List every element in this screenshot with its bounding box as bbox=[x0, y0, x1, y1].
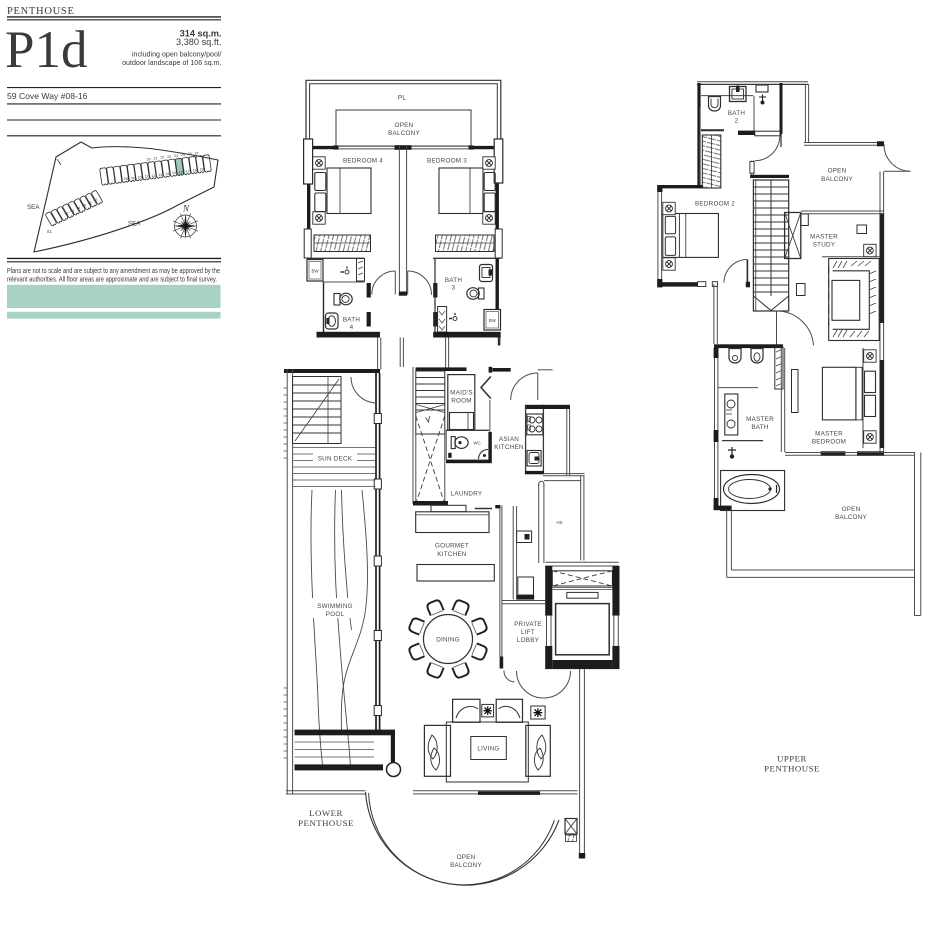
svg-text:17: 17 bbox=[186, 169, 190, 173]
svg-text:SEA: SEA bbox=[128, 221, 141, 228]
svg-text:MAID'S: MAID'S bbox=[450, 390, 473, 397]
svg-text:11: 11 bbox=[145, 175, 149, 179]
svg-text:10: 10 bbox=[138, 176, 142, 180]
svg-text:BEDROOM 3: BEDROOM 3 bbox=[427, 158, 467, 165]
svg-text:18: 18 bbox=[193, 169, 197, 173]
svg-text:12: 12 bbox=[151, 174, 155, 178]
svg-text:15: 15 bbox=[172, 171, 176, 175]
svg-text:22: 22 bbox=[160, 156, 164, 160]
svg-text:BALCONY: BALCONY bbox=[388, 130, 420, 137]
svg-text:BW: BW bbox=[489, 318, 497, 323]
svg-text:25: 25 bbox=[181, 153, 185, 157]
svg-text:outdoor landscape of 106 sq.m.: outdoor landscape of 106 sq.m. bbox=[122, 59, 221, 67]
svg-text:ROOM: ROOM bbox=[451, 398, 472, 405]
svg-text:KITCHEN: KITCHEN bbox=[494, 444, 524, 451]
svg-text:BATH: BATH bbox=[343, 317, 361, 324]
svg-text:PENTHOUSE: PENTHOUSE bbox=[7, 6, 75, 17]
svg-text:26: 26 bbox=[188, 152, 192, 156]
svg-text:BEDROOM 4: BEDROOM 4 bbox=[343, 158, 383, 165]
svg-text:MASTER: MASTER bbox=[810, 234, 838, 241]
svg-text:01: 01 bbox=[47, 229, 52, 234]
svg-text:04: 04 bbox=[76, 206, 80, 210]
svg-text:21: 21 bbox=[154, 157, 158, 161]
svg-text:OPEN: OPEN bbox=[828, 168, 847, 175]
svg-text:59 Cove Way #08-16: 59 Cove Way #08-16 bbox=[7, 91, 88, 101]
svg-text:3,380 sq.ft.: 3,380 sq.ft. bbox=[176, 37, 221, 47]
svg-text:OPEN: OPEN bbox=[457, 854, 476, 861]
svg-text:3: 3 bbox=[452, 285, 456, 292]
svg-text:MASTER: MASTER bbox=[815, 431, 843, 438]
svg-text:KITCHEN: KITCHEN bbox=[437, 551, 467, 558]
svg-text:HS: HS bbox=[556, 520, 562, 525]
svg-text:including open balcony/pool/: including open balcony/pool/ bbox=[132, 51, 222, 59]
svg-text:BALCONY: BALCONY bbox=[821, 176, 853, 183]
svg-text:PENTHOUSE: PENTHOUSE bbox=[298, 818, 354, 828]
svg-text:05: 05 bbox=[82, 204, 86, 208]
svg-text:UPPER: UPPER bbox=[777, 754, 807, 764]
svg-text:GOURMET: GOURMET bbox=[435, 543, 469, 550]
svg-text:2: 2 bbox=[735, 118, 739, 125]
svg-text:16: 16 bbox=[179, 170, 183, 174]
svg-text:OPEN: OPEN bbox=[842, 506, 861, 513]
svg-text:PRIVATE: PRIVATE bbox=[514, 621, 542, 628]
svg-text:08: 08 bbox=[124, 177, 128, 181]
svg-text:MASTER: MASTER bbox=[746, 416, 774, 423]
svg-text:Plans are not to scale and are: Plans are not to scale and are subject t… bbox=[7, 268, 220, 275]
svg-text:DINING: DINING bbox=[436, 637, 460, 644]
svg-text:06: 06 bbox=[88, 201, 92, 205]
svg-text:PENTHOUSE: PENTHOUSE bbox=[764, 764, 820, 774]
svg-text:LIFT: LIFT bbox=[521, 629, 535, 636]
svg-text:09: 09 bbox=[131, 176, 135, 180]
svg-text:BATH: BATH bbox=[751, 424, 769, 431]
svg-text:14: 14 bbox=[165, 172, 169, 176]
svg-text:BALCONY: BALCONY bbox=[450, 862, 482, 869]
svg-text:LOBBY: LOBBY bbox=[517, 637, 540, 644]
svg-text:ASIAN: ASIAN bbox=[499, 436, 519, 443]
svg-text:02: 02 bbox=[65, 212, 69, 216]
svg-text:LIVING: LIVING bbox=[477, 746, 499, 753]
svg-text:20: 20 bbox=[147, 157, 151, 161]
svg-text:24: 24 bbox=[174, 154, 178, 158]
svg-text:POOL: POOL bbox=[326, 611, 345, 618]
svg-text:SUN DECK: SUN DECK bbox=[318, 456, 353, 463]
svg-text:relevant authorities. All floo: relevant authorities. All floor areas ar… bbox=[7, 276, 217, 283]
svg-text:SWIMMING: SWIMMING bbox=[317, 603, 353, 610]
svg-text:N: N bbox=[182, 204, 190, 214]
svg-text:SEA: SEA bbox=[27, 204, 40, 211]
svg-text:23: 23 bbox=[167, 155, 171, 159]
svg-text:OPEN: OPEN bbox=[395, 122, 414, 129]
svg-text:BATH: BATH bbox=[728, 110, 746, 117]
svg-text:13: 13 bbox=[158, 173, 162, 177]
svg-text:LOWER: LOWER bbox=[309, 808, 343, 818]
svg-text:BW: BW bbox=[311, 269, 319, 274]
svg-text:BALCONY: BALCONY bbox=[835, 514, 867, 521]
svg-text:4: 4 bbox=[350, 324, 354, 331]
svg-text:STUDY: STUDY bbox=[813, 242, 836, 249]
svg-text:03: 03 bbox=[70, 209, 74, 213]
svg-text:P1d: P1d bbox=[5, 21, 87, 79]
svg-text:PL: PL bbox=[398, 95, 406, 102]
svg-text:WC: WC bbox=[473, 441, 480, 446]
svg-text:07: 07 bbox=[93, 198, 97, 202]
svg-text:LAUNDRY: LAUNDRY bbox=[451, 491, 483, 498]
svg-text:BATH: BATH bbox=[445, 277, 463, 284]
svg-text:27: 27 bbox=[195, 151, 199, 155]
svg-text:BEDROOM: BEDROOM bbox=[812, 439, 846, 446]
svg-text:19: 19 bbox=[200, 168, 204, 172]
svg-text:BEDROOM 2: BEDROOM 2 bbox=[695, 201, 735, 208]
